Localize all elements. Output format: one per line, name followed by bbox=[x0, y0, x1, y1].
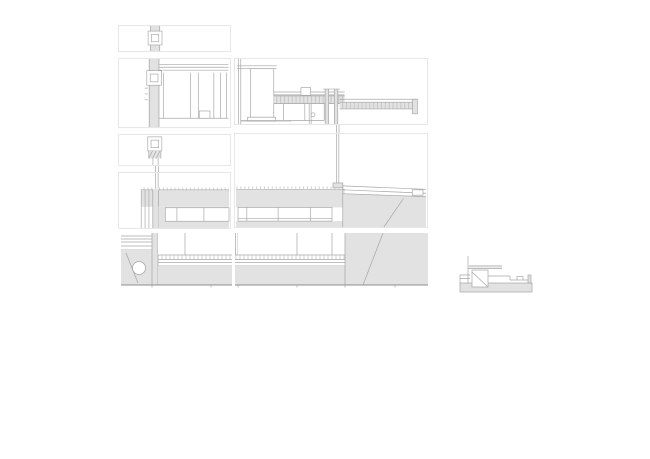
basement-left-drawing bbox=[121, 233, 232, 288]
panel-mullion-transom-detail bbox=[118, 134, 231, 166]
panel-basement-window-right bbox=[235, 233, 428, 288]
panel-basement-window-left bbox=[121, 233, 232, 288]
panel-threshold-mini-section bbox=[458, 252, 534, 294]
mullion-continuation-upper bbox=[333, 125, 341, 133]
clerestory-left-drawing bbox=[119, 173, 230, 228]
panel-roof-terrace-junction bbox=[234, 58, 428, 125]
drawing-sheet bbox=[0, 0, 650, 459]
panel-clerestory-slab-left bbox=[118, 172, 231, 229]
panel-mullion-head-detail bbox=[118, 25, 231, 52]
panel-clerestory-terrace bbox=[234, 133, 428, 228]
mullion-head-drawing bbox=[119, 26, 230, 51]
panel-mullion-roof-section bbox=[118, 58, 231, 128]
basement-right-drawing bbox=[235, 233, 428, 288]
threshold-drawing bbox=[458, 252, 534, 294]
roof-terrace-drawing bbox=[235, 59, 427, 124]
clerestory-terrace-drawing bbox=[235, 134, 427, 227]
mullion-roof-drawing bbox=[119, 59, 230, 127]
transom-drawing bbox=[119, 135, 230, 165]
